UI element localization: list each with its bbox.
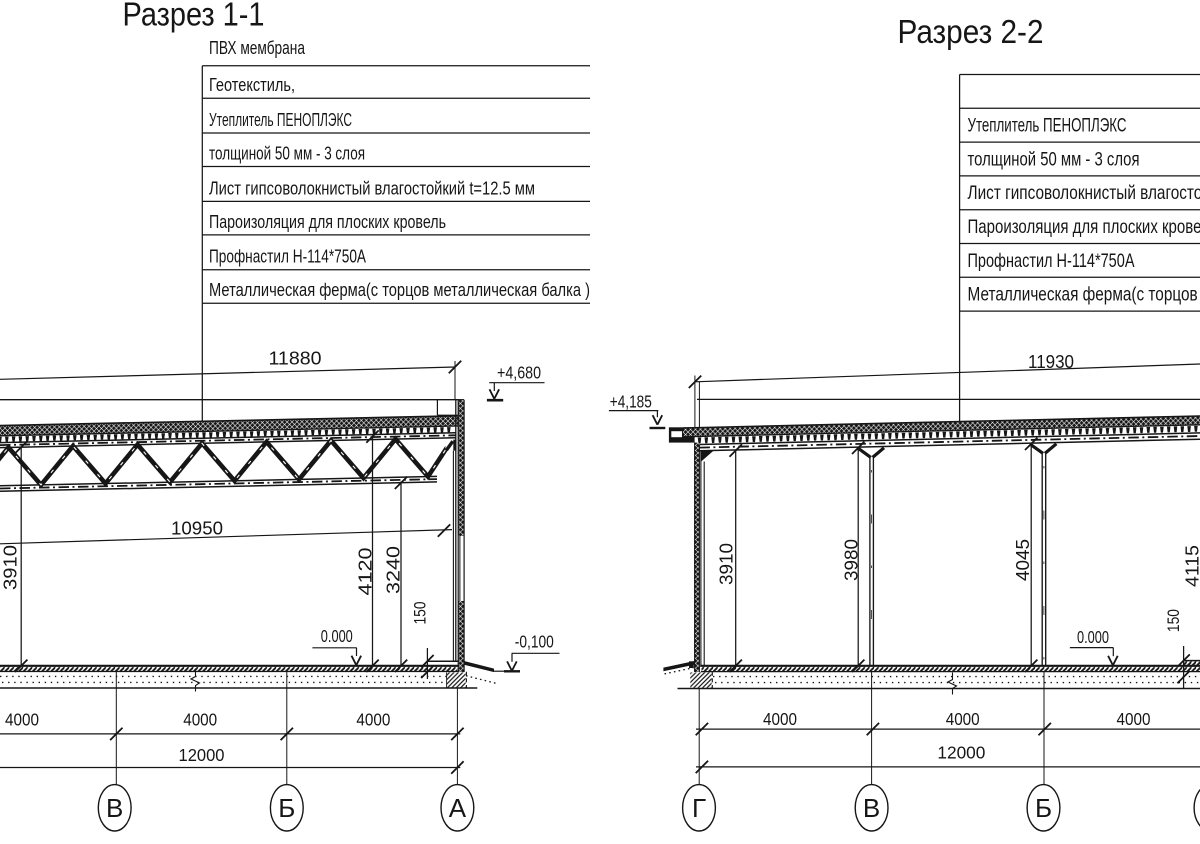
svg-text:Б: Б — [278, 793, 295, 823]
svg-text:Б: Б — [1035, 793, 1052, 823]
svg-text:Металлическая ферма(с торцов м: Металлическая ферма(с торцов металлическ… — [968, 285, 1200, 306]
svg-text:4045: 4045 — [1013, 539, 1033, 581]
svg-text:Лист гипсоволокнистый влагосто: Лист гипсоволокнистый влагостойкий t=12.… — [968, 183, 1200, 204]
svg-text:11880: 11880 — [269, 349, 322, 369]
svg-text:4000: 4000 — [1117, 709, 1151, 729]
svg-text:10950: 10950 — [171, 519, 223, 539]
svg-text:Геотекстиль,: Геотекстиль, — [209, 75, 295, 95]
svg-text:В: В — [863, 793, 880, 823]
svg-text:Разрез 1-1: Разрез 1-1 — [123, 0, 265, 33]
svg-text:4000: 4000 — [5, 710, 39, 730]
svg-text:4115: 4115 — [1183, 545, 1200, 587]
svg-text:12000: 12000 — [937, 743, 985, 763]
svg-text:+4,185: +4,185 — [610, 391, 652, 411]
svg-text:4120: 4120 — [355, 548, 375, 596]
svg-text:4000: 4000 — [763, 709, 797, 729]
svg-text:Утеплитель ПЕНОПЛЭКС: Утеплитель ПЕНОПЛЭКС — [209, 110, 352, 130]
svg-text:150: 150 — [411, 602, 430, 625]
svg-text:Разрез 2-2: Разрез 2-2 — [898, 13, 1044, 50]
svg-text:В: В — [106, 793, 123, 823]
svg-text:Металлическая ферма(с торцов м: Металлическая ферма(с торцов металлическ… — [209, 280, 590, 300]
svg-text:4000: 4000 — [356, 710, 390, 730]
svg-text:4000: 4000 — [946, 709, 980, 729]
svg-text:Профнастил Н-114*750А: Профнастил Н-114*750А — [968, 251, 1135, 272]
svg-text:3910: 3910 — [717, 543, 737, 585]
svg-text:А: А — [449, 793, 467, 823]
svg-text:Утеплитель ПЕНОПЛЭКС: Утеплитель ПЕНОПЛЭКС — [968, 116, 1127, 137]
svg-text:толщиной 50 мм - 3 слоя: толщиной 50 мм - 3 слоя — [209, 144, 365, 164]
svg-text:Лист гипсоволокнистый влагосто: Лист гипсоволокнистый влагостойкий t=12.… — [209, 178, 535, 198]
svg-text:0.000: 0.000 — [1077, 627, 1109, 647]
svg-text:Пароизоляция для плоских крове: Пароизоляция для плоских кровель — [209, 212, 446, 232]
svg-text:+4,680: +4,680 — [497, 363, 541, 383]
svg-text:3980: 3980 — [841, 539, 861, 581]
svg-text:11930: 11930 — [1028, 352, 1074, 372]
svg-text:150: 150 — [1164, 609, 1183, 632]
svg-text:0.000: 0.000 — [321, 626, 353, 646]
svg-text:4000: 4000 — [183, 710, 217, 730]
svg-text:ПВХ мембрана: ПВХ мембрана — [209, 38, 306, 58]
svg-text:Профнастил Н-114*750А: Профнастил Н-114*750А — [209, 247, 367, 267]
svg-text:Пароизоляция для плоских крове: Пароизоляция для плоских кровель — [968, 217, 1200, 238]
svg-text:3240: 3240 — [383, 546, 403, 594]
svg-text:Г: Г — [692, 793, 706, 823]
svg-text:12000: 12000 — [179, 745, 225, 765]
svg-text:-0,100: -0,100 — [515, 631, 554, 651]
svg-text:3910: 3910 — [1, 545, 21, 590]
svg-text:толщиной 50 мм - 3 слоя: толщиной 50 мм - 3 слоя — [968, 149, 1140, 170]
